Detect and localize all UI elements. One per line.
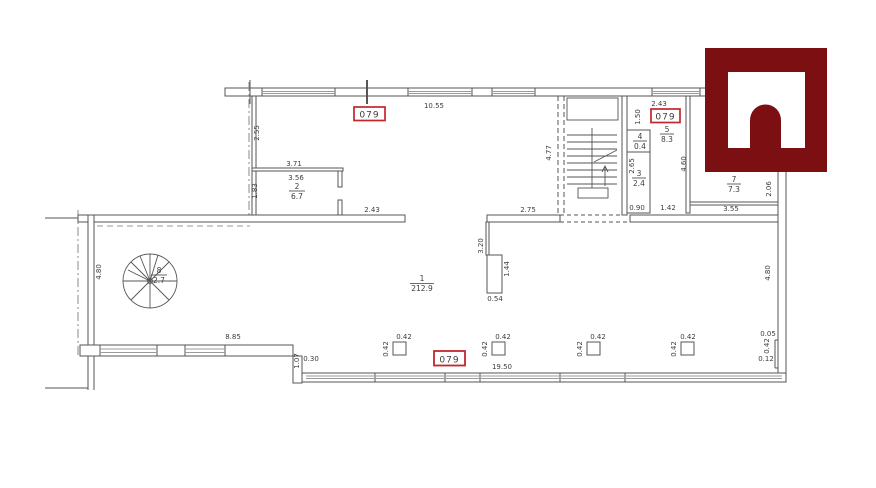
dim-label-vertical: 0.42 [481,341,489,357]
dim-label: 3.55 [723,205,739,213]
dim-label: 0.12 [758,355,774,363]
dim-label-vertical: 0.42 [670,341,678,357]
logo-mark [705,48,827,172]
wall-duct-stub [486,222,489,255]
room-number: 5 [665,125,670,134]
stair-direction-arrow [602,166,608,186]
room-area: 6.7 [291,192,303,201]
dim-label-vertical: 3.20 [477,238,485,254]
room-number: 2 [295,182,300,191]
room-number: 1 [420,274,425,283]
dim-label: 0.42 [590,333,606,341]
dim-label: 19.50 [492,363,512,371]
column [681,342,694,355]
column [393,342,406,355]
floor-plan-page: 1212.926.732.440.458.377.382.7 10.553.71… [0,0,876,488]
dim-label-vertical: 2.06 [765,181,773,197]
wall-room5-right [686,96,690,213]
unit-badge: 079 [655,113,675,123]
dim-label-vertical: 0.42 [576,341,584,357]
spiral-staircase [123,254,177,308]
dim-label: 0.42 [396,333,412,341]
column [492,342,505,355]
dim-label-vertical: 1.50 [634,109,642,125]
dim-label-vertical: 4.80 [95,264,103,280]
room-area: 212.9 [411,284,433,293]
room-number: 7 [732,175,737,184]
dim-label-vertical: 2.65 [628,158,636,174]
wall-room2-right-b [338,200,342,215]
wall-lower-left [88,215,94,345]
dim-label: 0.42 [495,333,511,341]
dim-label-vertical: 4.60 [680,156,688,172]
floor-plan-canvas: 1212.926.732.440.458.377.382.7 10.553.71… [0,0,876,488]
duct-pillar [487,255,502,293]
dim-label-vertical: 0.42 [763,338,771,354]
dim-label-vertical: 2.55 [253,125,261,141]
room-number: 3 [637,169,642,178]
room-area: 7.3 [728,185,740,194]
main-staircase [567,98,618,198]
dim-label: 2.43 [651,100,667,108]
room-area: 2.4 [633,179,645,188]
room-number: 4 [638,132,643,141]
stair-top-landing [567,98,618,120]
dim-label-vertical: 4.77 [545,145,553,161]
dim-label: 0.54 [487,295,503,303]
logo-arch-icon [750,105,781,149]
wall-mid-dashed [560,215,630,222]
wall-room2-top [252,168,343,171]
room-area: 0.4 [634,142,646,151]
dim-label: 3.56 [288,174,304,182]
column [587,342,600,355]
dim-label: 0.05 [760,330,776,338]
dim-label: 2.75 [520,206,536,214]
dim-label-vertical: 1.44 [503,261,511,277]
unit-badge: 079 [359,111,379,121]
dim-label: 0.90 [629,204,645,212]
unit-badge: 079 [439,356,459,366]
dim-label-vertical: 0.42 [382,341,390,357]
dim-label-vertical: 1.83 [251,183,259,199]
room-labels: 1212.926.732.440.458.377.382.7 [151,125,741,293]
dimension-labels: 10.553.713.562.432.752.430.901.423.558.8… [95,100,776,371]
dim-label: 8.85 [225,333,241,341]
dim-label-vertical: 1.07 [293,353,301,369]
window-wall-bottom-left [80,345,293,356]
wall-mid-b [487,215,560,222]
dim-label: 10.55 [424,102,444,110]
stair-bottom-landing [578,188,608,198]
wall-mid-a [78,215,405,222]
dim-label: 3.71 [286,160,302,168]
room-area: 2.7 [153,276,165,285]
dim-label: 0.42 [680,333,696,341]
room-area: 8.3 [661,135,673,144]
wall-stair-left-dashed [558,96,564,215]
room-number: 8 [157,266,162,275]
dim-label: 1.42 [660,204,676,212]
wall-room2-right-a [338,171,342,187]
dim-label-vertical: 4.80 [764,265,772,281]
dim-label: 2.43 [364,206,380,214]
wall-mid-c [630,215,786,222]
wall-stair-right [622,96,627,215]
dim-label: 0.30 [303,355,319,363]
